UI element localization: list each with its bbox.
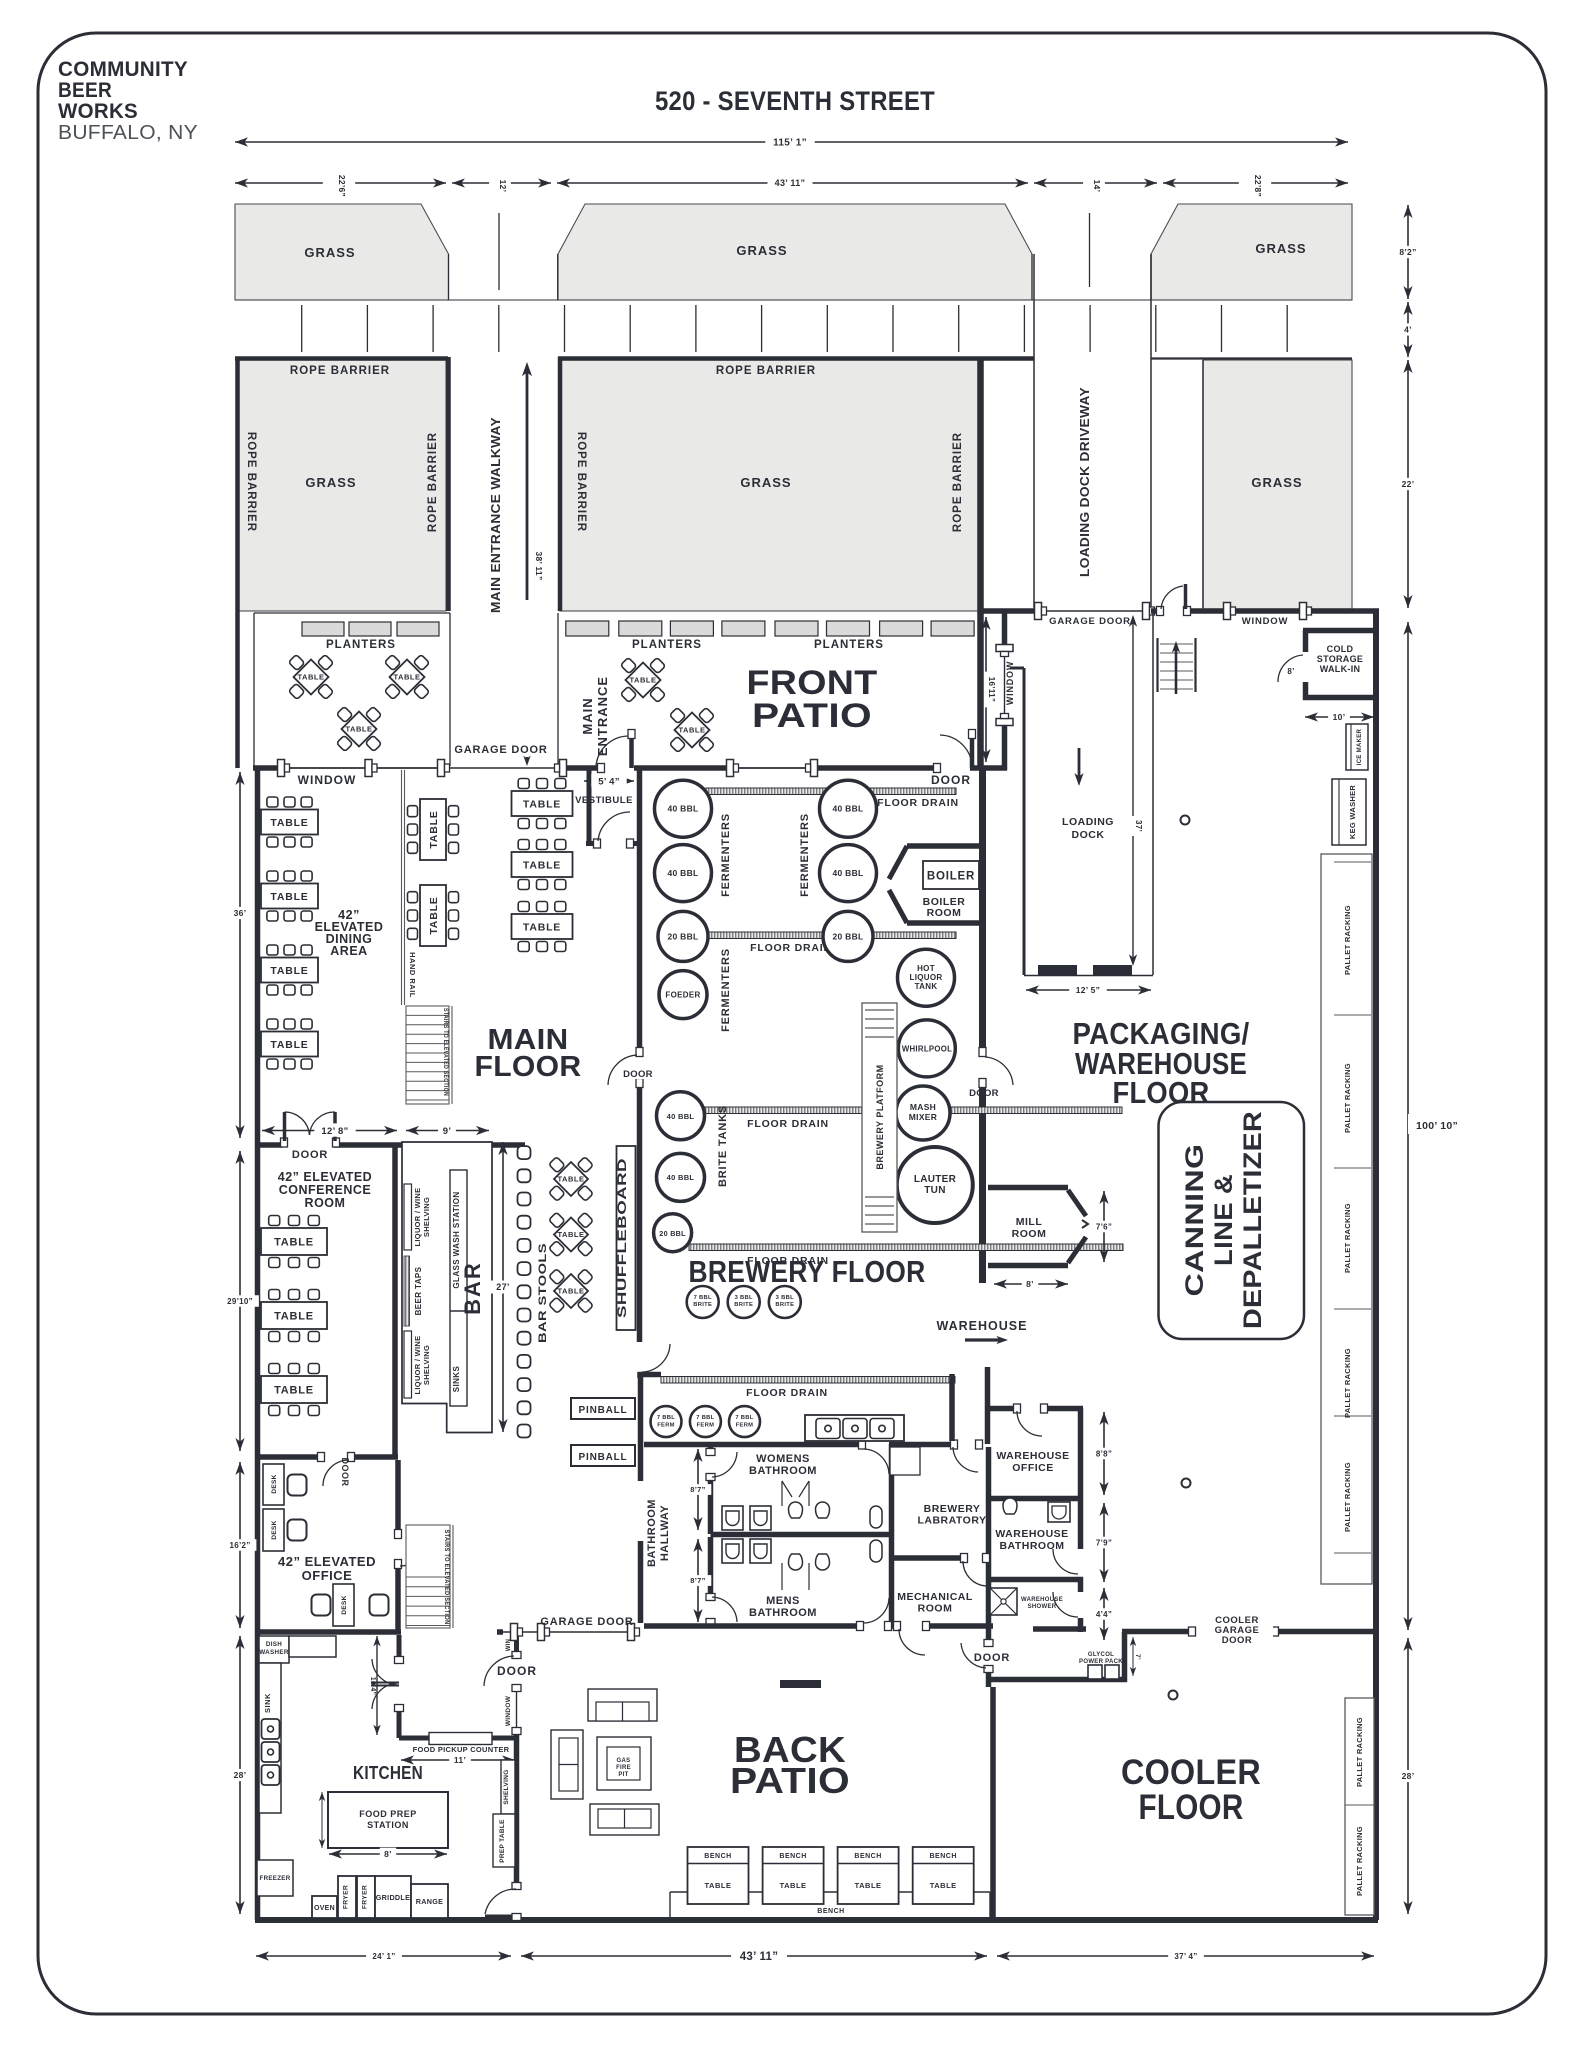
svg-text:PALLET RACKING: PALLET RACKING xyxy=(1343,1063,1352,1133)
svg-text:43’ 11”: 43’ 11” xyxy=(740,1951,779,1963)
svg-text:TABLE: TABLE xyxy=(298,673,325,682)
svg-text:TABLE: TABLE xyxy=(705,1881,732,1890)
svg-text:40 BBL: 40 BBL xyxy=(832,804,863,814)
svg-text:GRASS: GRASS xyxy=(1251,475,1302,490)
svg-text:8’8”: 8’8” xyxy=(1096,1449,1112,1458)
svg-text:BATHROOM: BATHROOM xyxy=(749,1607,817,1619)
svg-text:ROPE BARRIER: ROPE BARRIER xyxy=(575,432,587,532)
svg-text:DOOR: DOOR xyxy=(497,1664,537,1678)
svg-text:WALK-IN: WALK-IN xyxy=(1320,664,1361,674)
svg-text:BRITE: BRITE xyxy=(775,1302,794,1308)
svg-text:TABLE: TABLE xyxy=(630,676,657,685)
svg-text:CANNING: CANNING xyxy=(1181,1144,1209,1297)
svg-text:ROPE BARRIER: ROPE BARRIER xyxy=(290,365,390,377)
svg-text:FLOOR DRAIN: FLOOR DRAIN xyxy=(750,942,832,954)
svg-text:PIT: PIT xyxy=(618,1772,628,1778)
svg-text:36’: 36’ xyxy=(234,908,247,918)
svg-text:GARAGE DOOR: GARAGE DOOR xyxy=(540,1616,633,1628)
svg-text:CONFERENCE: CONFERENCE xyxy=(279,1183,372,1197)
svg-text:PLANTERS: PLANTERS xyxy=(814,639,884,651)
svg-text:20 BBL: 20 BBL xyxy=(667,931,698,941)
svg-text:PLANTERS: PLANTERS xyxy=(632,639,702,651)
svg-text:BATHROOM: BATHROOM xyxy=(749,1465,817,1477)
svg-text:MAIN ENTRANCE WALKWAY: MAIN ENTRANCE WALKWAY xyxy=(488,417,503,613)
svg-text:TABLE: TABLE xyxy=(855,1881,882,1890)
svg-text:8’: 8’ xyxy=(1026,1279,1034,1289)
svg-text:FERM: FERM xyxy=(697,1423,715,1429)
svg-text:FERM: FERM xyxy=(657,1423,675,1429)
svg-text:11’: 11’ xyxy=(454,1755,466,1765)
svg-text:100’ 10”: 100’ 10” xyxy=(1416,1120,1458,1132)
svg-text:STATION: STATION xyxy=(367,1820,409,1830)
svg-text:TABLE: TABLE xyxy=(428,810,440,848)
svg-text:PALLET RACKING: PALLET RACKING xyxy=(1355,1826,1364,1896)
svg-text:SINK: SINK xyxy=(263,1693,272,1713)
svg-text:22’8”: 22’8” xyxy=(1253,175,1263,197)
svg-text:28’: 28’ xyxy=(1402,1771,1415,1781)
svg-text:37’ 4”: 37’ 4” xyxy=(1174,1952,1197,1961)
svg-text:PALLET RACKING: PALLET RACKING xyxy=(1343,905,1352,975)
svg-text:WOMENS: WOMENS xyxy=(756,1453,810,1465)
svg-text:TABLE: TABLE xyxy=(523,921,561,933)
svg-text:8’2”: 8’2” xyxy=(1399,247,1416,257)
svg-text:BREWERY FLOOR: BREWERY FLOOR xyxy=(689,1254,926,1289)
svg-text:BREWERY PLATFORM: BREWERY PLATFORM xyxy=(875,1064,885,1169)
svg-text:42” ELEVATED: 42” ELEVATED xyxy=(278,1554,376,1569)
svg-text:DOOR: DOOR xyxy=(969,1088,999,1099)
svg-text:16’2”: 16’2” xyxy=(229,1541,250,1550)
svg-text:DOOR: DOOR xyxy=(974,1652,1010,1664)
svg-text:FOOD PICKUP COUNTER: FOOD PICKUP COUNTER xyxy=(413,1745,510,1754)
svg-text:DOOR: DOOR xyxy=(1222,1635,1253,1646)
svg-text:FREEZER: FREEZER xyxy=(260,1875,291,1882)
svg-text:14’: 14’ xyxy=(1092,180,1102,193)
svg-text:8’: 8’ xyxy=(1287,667,1294,676)
svg-text:TABLE: TABLE xyxy=(780,1881,807,1890)
svg-text:TUN: TUN xyxy=(924,1185,945,1196)
svg-text:10’: 10’ xyxy=(1333,712,1346,722)
svg-text:7’: 7’ xyxy=(1134,1654,1141,1660)
svg-text:WAREHOUSE: WAREHOUSE xyxy=(996,1450,1069,1462)
svg-text:7’6”: 7’6” xyxy=(1096,1222,1112,1231)
svg-text:ROPE BARRIER: ROPE BARRIER xyxy=(427,432,439,532)
svg-text:GARAGE DOOR: GARAGE DOOR xyxy=(1049,616,1131,627)
svg-text:PLANTERS: PLANTERS xyxy=(326,639,396,651)
svg-text:16’11”: 16’11” xyxy=(987,677,996,702)
svg-text:FLOOR DRAIN: FLOOR DRAIN xyxy=(747,1118,829,1130)
svg-text:SHELVING: SHELVING xyxy=(422,1197,431,1237)
svg-text:PALLET RACKING: PALLET RACKING xyxy=(1343,1462,1352,1532)
svg-text:MASH: MASH xyxy=(910,1102,936,1112)
svg-text:DESK: DESK xyxy=(341,1595,348,1614)
svg-text:WAREHOUSE: WAREHOUSE xyxy=(937,1319,1028,1333)
svg-text:FLOOR DRAIN: FLOOR DRAIN xyxy=(746,1387,828,1399)
svg-text:DEPALLETIZER: DEPALLETIZER xyxy=(1239,1111,1267,1329)
svg-text:GRASS: GRASS xyxy=(1255,241,1306,256)
svg-text:115’ 1”: 115’ 1” xyxy=(773,138,807,149)
svg-text:PALLET RACKING: PALLET RACKING xyxy=(1343,1348,1352,1418)
svg-text:BATHROOM: BATHROOM xyxy=(999,1540,1064,1552)
svg-text:4’: 4’ xyxy=(1404,325,1412,335)
svg-text:TABLE: TABLE xyxy=(523,798,561,810)
svg-text:12’: 12’ xyxy=(498,180,508,193)
svg-text:FERMENTERS: FERMENTERS xyxy=(720,813,732,897)
svg-text:OVEN: OVEN xyxy=(314,1905,335,1912)
svg-text:3 BBL: 3 BBL xyxy=(776,1295,794,1301)
svg-text:GLYCOL: GLYCOL xyxy=(1088,1652,1114,1658)
svg-text:40 BBL: 40 BBL xyxy=(667,1112,695,1121)
svg-text:27’: 27’ xyxy=(496,1282,509,1292)
svg-text:HAND RAIL: HAND RAIL xyxy=(408,952,417,998)
svg-text:FIRE: FIRE xyxy=(616,1765,631,1771)
svg-text:DISH: DISH xyxy=(266,1641,282,1648)
svg-text:FLOOR: FLOOR xyxy=(1139,1788,1244,1827)
svg-text:BENCH: BENCH xyxy=(930,1853,957,1860)
svg-text:7 BBL: 7 BBL xyxy=(735,1415,753,1421)
svg-text:WAREHOUSE: WAREHOUSE xyxy=(1021,1597,1063,1603)
svg-text:20 BBL: 20 BBL xyxy=(659,1229,686,1238)
svg-text:TABLE: TABLE xyxy=(930,1881,957,1890)
svg-text:TABLE: TABLE xyxy=(270,891,308,903)
svg-text:MAIN: MAIN xyxy=(580,697,595,734)
svg-text:WINDOW: WINDOW xyxy=(298,773,357,787)
svg-text:12’ 8”: 12’ 8” xyxy=(321,1126,348,1137)
svg-text:STAIRS TO ELEVATED SECTION: STAIRS TO ELEVATED SECTION xyxy=(442,1008,449,1096)
svg-text:LIQUOR: LIQUOR xyxy=(910,973,943,982)
svg-text:ROOM: ROOM xyxy=(927,907,962,919)
svg-text:40 BBL: 40 BBL xyxy=(667,868,698,878)
svg-text:BRITE: BRITE xyxy=(734,1302,753,1308)
svg-text:12’ 5”: 12’ 5” xyxy=(1076,985,1101,995)
svg-text:ROOM: ROOM xyxy=(918,1603,953,1615)
svg-text:KEG WASHER: KEG WASHER xyxy=(1348,785,1357,840)
svg-text:40 BBL: 40 BBL xyxy=(667,1173,695,1182)
svg-text:8’7”: 8’7” xyxy=(690,1576,705,1585)
svg-text:20 BBL: 20 BBL xyxy=(832,931,863,941)
svg-text:PALLET RACKING: PALLET RACKING xyxy=(1343,1203,1352,1273)
svg-text:GAS: GAS xyxy=(617,1758,631,1764)
svg-text:PINBALL: PINBALL xyxy=(579,1452,628,1463)
svg-text:WINDOW: WINDOW xyxy=(505,1695,512,1726)
svg-text:37’: 37’ xyxy=(1134,820,1143,832)
svg-text:BENCH: BENCH xyxy=(704,1853,731,1860)
svg-text:SHELVING: SHELVING xyxy=(422,1345,431,1385)
svg-text:ROPE BARRIER: ROPE BARRIER xyxy=(716,365,816,377)
svg-text:WINDOW: WINDOW xyxy=(1242,616,1288,627)
svg-text:GRIDDLE: GRIDDLE xyxy=(376,1893,410,1902)
svg-text:TABLE: TABLE xyxy=(679,726,706,735)
svg-text:BUFFALO, NY: BUFFALO, NY xyxy=(58,121,198,144)
svg-text:LAUTER: LAUTER xyxy=(914,1174,957,1185)
svg-text:GRASS: GRASS xyxy=(736,243,787,258)
svg-text:LOADING: LOADING xyxy=(1062,816,1114,828)
svg-text:TABLE: TABLE xyxy=(274,1310,314,1322)
svg-text:LIQUOR / WINE: LIQUOR / WINE xyxy=(413,1336,422,1395)
svg-text:SHELVING: SHELVING xyxy=(503,1769,510,1804)
svg-text:FLOOR DRAIN: FLOOR DRAIN xyxy=(877,797,959,809)
svg-text:TABLE: TABLE xyxy=(558,1175,585,1184)
svg-text:HOT: HOT xyxy=(917,964,935,973)
svg-text:LIQUOR / WINE: LIQUOR / WINE xyxy=(413,1188,422,1247)
svg-text:BRITE: BRITE xyxy=(693,1302,712,1308)
svg-text:FRYER: FRYER xyxy=(362,1885,369,1909)
svg-text:TABLE: TABLE xyxy=(346,725,373,734)
svg-text:DOOR: DOOR xyxy=(340,1458,350,1487)
svg-text:BOILER: BOILER xyxy=(927,871,975,883)
svg-text:520 - SEVENTH STREET: 520 - SEVENTH STREET xyxy=(655,86,935,116)
svg-text:22’6”: 22’6” xyxy=(337,175,347,197)
svg-text:FLOOR: FLOOR xyxy=(475,1051,582,1083)
svg-text:BENCH: BENCH xyxy=(854,1853,881,1860)
svg-text:PREP TABLE: PREP TABLE xyxy=(499,1819,506,1863)
svg-text:TABLE: TABLE xyxy=(523,859,561,871)
svg-text:ROOM: ROOM xyxy=(305,1196,346,1210)
svg-text:FRYER: FRYER xyxy=(343,1885,350,1909)
svg-text:TABLE: TABLE xyxy=(270,817,308,829)
svg-text:MILL: MILL xyxy=(1016,1216,1043,1228)
svg-text:SHOWER: SHOWER xyxy=(1028,1604,1057,1610)
svg-text:GRASS: GRASS xyxy=(304,245,355,260)
svg-text:LOADING DOCK DRIVEWAY: LOADING DOCK DRIVEWAY xyxy=(1077,387,1092,577)
svg-text:OFFICE: OFFICE xyxy=(1012,1462,1054,1474)
svg-text:BAR STOOLS: BAR STOOLS xyxy=(537,1243,549,1343)
svg-text:FOEDER: FOEDER xyxy=(665,991,700,1000)
svg-text:ROOM: ROOM xyxy=(1012,1228,1047,1240)
svg-text:FOOD PREP: FOOD PREP xyxy=(359,1809,417,1819)
svg-text:BENCH: BENCH xyxy=(779,1853,806,1860)
svg-text:KITCHEN: KITCHEN xyxy=(353,1763,423,1783)
svg-text:ROPE BARRIER: ROPE BARRIER xyxy=(952,432,964,532)
svg-text:40 BBL: 40 BBL xyxy=(667,804,698,814)
svg-text:BAR: BAR xyxy=(460,1261,485,1315)
svg-text:TABLE: TABLE xyxy=(558,1287,585,1296)
svg-text:AREA: AREA xyxy=(330,944,367,958)
svg-text:28’: 28’ xyxy=(234,1770,247,1780)
svg-text:BENCH: BENCH xyxy=(817,1908,844,1915)
svg-text:BEER TAPS: BEER TAPS xyxy=(414,1266,423,1315)
svg-text:LINE &: LINE & xyxy=(1210,1174,1238,1266)
svg-text:ROPE BARRIER: ROPE BARRIER xyxy=(245,432,257,532)
svg-text:PATIO: PATIO xyxy=(752,697,872,735)
svg-text:TABLE: TABLE xyxy=(270,1039,308,1051)
svg-text:TABLE: TABLE xyxy=(274,1236,314,1248)
svg-text:9’: 9’ xyxy=(443,1126,452,1137)
svg-text:7 BBL: 7 BBL xyxy=(657,1415,675,1421)
svg-text:BATHROOM: BATHROOM xyxy=(646,1499,658,1567)
svg-text:42” ELEVATED: 42” ELEVATED xyxy=(278,1170,372,1184)
svg-text:29’10”: 29’10” xyxy=(227,1297,253,1306)
svg-text:22’: 22’ xyxy=(1402,479,1415,489)
svg-text:3 BBL: 3 BBL xyxy=(735,1295,753,1301)
svg-text:FERMENTERS: FERMENTERS xyxy=(720,948,732,1032)
svg-text:DESK: DESK xyxy=(271,1474,278,1493)
svg-text:DOOR: DOOR xyxy=(931,773,971,787)
svg-text:5’ 4”: 5’ 4” xyxy=(598,776,620,787)
svg-text:MIXER: MIXER xyxy=(909,1112,937,1122)
svg-text:POWER PACK: POWER PACK xyxy=(1079,1659,1123,1665)
svg-text:OFFICE: OFFICE xyxy=(302,1568,353,1583)
svg-text:COOLER: COOLER xyxy=(1121,1753,1261,1792)
svg-text:STORAGE: STORAGE xyxy=(1317,654,1363,664)
svg-text:DOCK: DOCK xyxy=(1072,829,1105,841)
svg-text:MECHANICAL: MECHANICAL xyxy=(897,1591,973,1603)
svg-text:WAREHOUSE: WAREHOUSE xyxy=(995,1528,1068,1540)
svg-text:MENS: MENS xyxy=(766,1595,800,1607)
svg-text:PATIO: PATIO xyxy=(730,1760,850,1801)
svg-text:WASHER: WASHER xyxy=(259,1649,289,1656)
svg-text:WHIRLPOOL: WHIRLPOOL xyxy=(902,1045,952,1054)
svg-text:40 BBL: 40 BBL xyxy=(832,868,863,878)
svg-text:BREWERY: BREWERY xyxy=(924,1503,981,1515)
svg-text:TABLE: TABLE xyxy=(270,965,308,977)
svg-text:7’9”: 7’9” xyxy=(1096,1538,1112,1547)
svg-text:TABLE: TABLE xyxy=(428,896,440,934)
svg-text:DOOR: DOOR xyxy=(292,1149,328,1161)
svg-text:SHUFFLEBOARD: SHUFFLEBOARD xyxy=(615,1158,629,1318)
svg-text:7 BBL: 7 BBL xyxy=(694,1295,712,1301)
svg-text:SINKS: SINKS xyxy=(452,1366,461,1393)
svg-text:TABLE: TABLE xyxy=(274,1384,314,1396)
svg-text:GRASS: GRASS xyxy=(305,475,356,490)
svg-text:FERM: FERM xyxy=(736,1423,754,1429)
svg-text:24’ 1”: 24’ 1” xyxy=(372,1952,395,1961)
svg-text:LABRATORY: LABRATORY xyxy=(917,1515,986,1527)
svg-text:COLD: COLD xyxy=(1327,644,1354,654)
svg-text:PINBALL: PINBALL xyxy=(579,1405,628,1416)
svg-text:8’7”: 8’7” xyxy=(690,1485,705,1494)
svg-text:GARAGE DOOR: GARAGE DOOR xyxy=(454,744,547,756)
svg-text:RANGE: RANGE xyxy=(416,1897,443,1906)
svg-text:STAIRS TO ELEVATED SECTION: STAIRS TO ELEVATED SECTION xyxy=(443,1530,450,1625)
svg-text:PALLET RACKING: PALLET RACKING xyxy=(1355,1717,1364,1787)
svg-text:DESK: DESK xyxy=(271,1520,278,1539)
svg-text:ICE MAKER: ICE MAKER xyxy=(1357,728,1363,765)
svg-text:WORKS: WORKS xyxy=(58,99,138,123)
svg-text:VESTIBULE: VESTIBULE xyxy=(575,795,633,806)
svg-text:38’ 11”: 38’ 11” xyxy=(534,551,544,580)
svg-text:TABLE: TABLE xyxy=(394,673,421,682)
svg-text:TANK: TANK xyxy=(915,982,938,991)
svg-text:FERMENTERS: FERMENTERS xyxy=(799,813,811,897)
svg-text:HALLWAY: HALLWAY xyxy=(659,1505,671,1561)
svg-text:43’ 11”: 43’ 11” xyxy=(775,178,806,188)
svg-text:BRITE TANKS: BRITE TANKS xyxy=(717,1105,729,1187)
svg-text:4’4”: 4’4” xyxy=(1096,1610,1112,1619)
svg-text:TABLE: TABLE xyxy=(558,1230,585,1239)
svg-text:DOOR: DOOR xyxy=(623,1069,653,1080)
svg-text:8’: 8’ xyxy=(384,1849,392,1859)
svg-text:7 BBL: 7 BBL xyxy=(696,1415,714,1421)
svg-text:GRASS: GRASS xyxy=(740,475,791,490)
